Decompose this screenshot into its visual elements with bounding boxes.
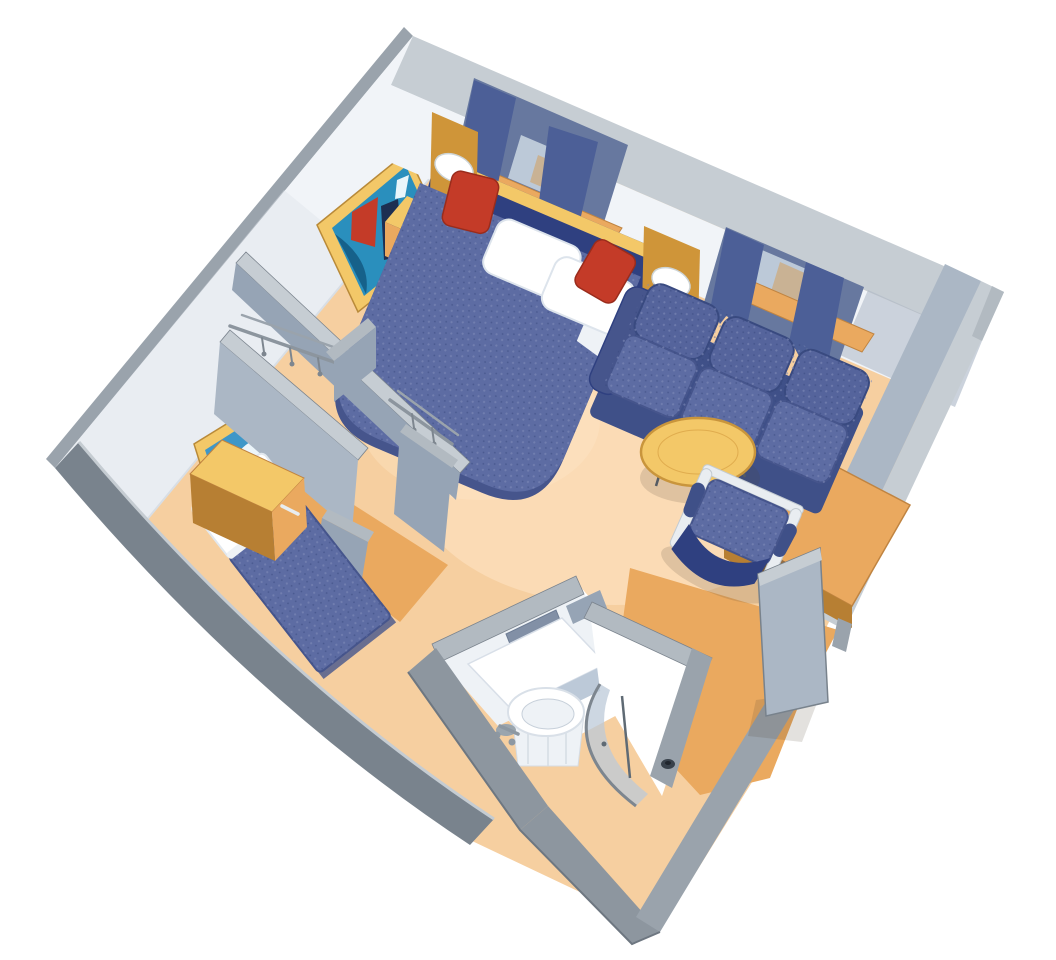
faucet-knob-2 bbox=[509, 739, 516, 746]
floor-plan-page bbox=[0, 0, 1056, 960]
round-sink bbox=[508, 688, 584, 766]
shower-drain-hole bbox=[665, 761, 671, 765]
shower-door-handle bbox=[602, 742, 607, 747]
sink-basin bbox=[522, 699, 574, 729]
floor-plan-rendering bbox=[0, 0, 1056, 960]
